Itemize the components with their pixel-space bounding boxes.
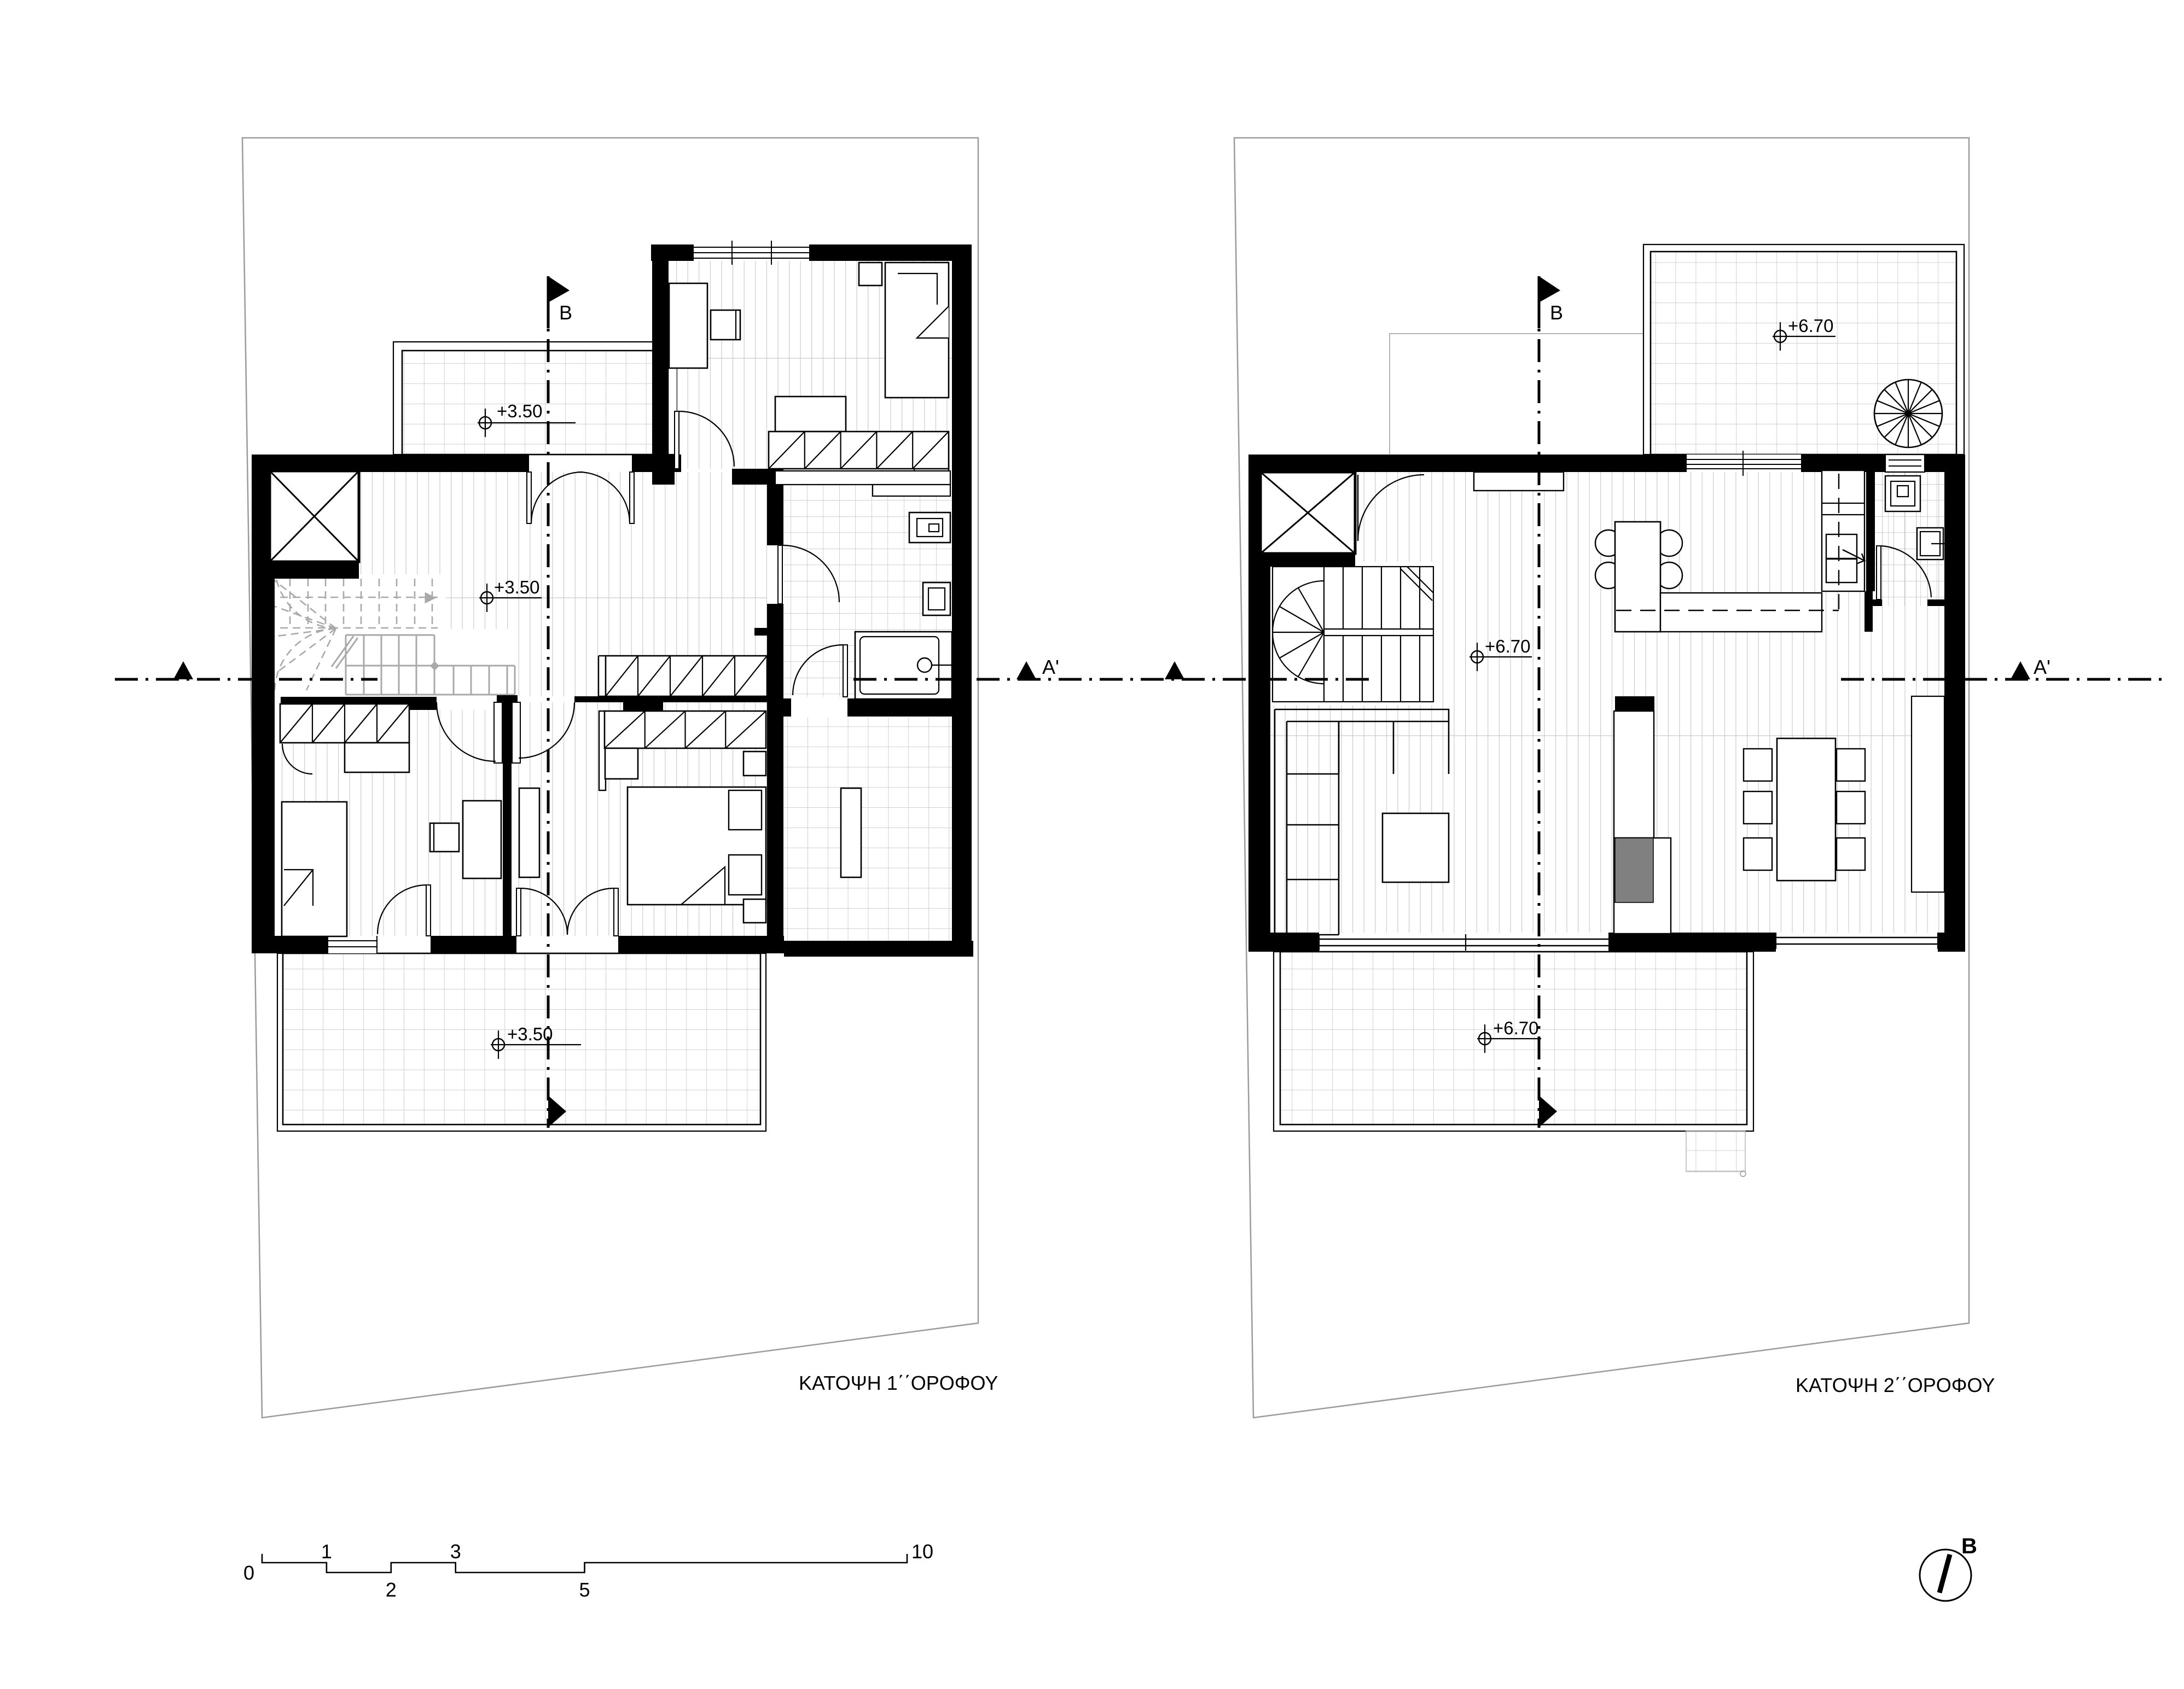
svg-text:A': A' xyxy=(1042,656,1059,678)
svg-text:+3.50: +3.50 xyxy=(507,1024,553,1044)
svg-text:3: 3 xyxy=(450,1540,461,1563)
svg-text:1: 1 xyxy=(321,1540,332,1563)
svg-text:B: B xyxy=(559,301,572,324)
svg-text:+3.50: +3.50 xyxy=(497,401,543,421)
svg-text:+3.50: +3.50 xyxy=(494,577,540,597)
svg-text:ΚΑΤΟΨΗ 1΄΄ΟΡΟΦΟΥ: ΚΑΤΟΨΗ 1΄΄ΟΡΟΦΟΥ xyxy=(799,1372,998,1394)
svg-text:B: B xyxy=(1961,1534,1977,1558)
svg-text:10: 10 xyxy=(911,1540,933,1563)
svg-text:A': A' xyxy=(2034,656,2051,678)
svg-text:5: 5 xyxy=(579,1579,590,1601)
svg-text:+6.70: +6.70 xyxy=(1788,316,1834,336)
svg-text:ΚΑΤΟΨΗ 2΄΄ΟΡΟΦΟΥ: ΚΑΤΟΨΗ 2΄΄ΟΡΟΦΟΥ xyxy=(1796,1374,1995,1396)
svg-text:+6.70: +6.70 xyxy=(1485,636,1531,656)
svg-text:B: B xyxy=(1550,301,1563,324)
svg-text:+6.70: +6.70 xyxy=(1493,1018,1539,1038)
svg-text:2: 2 xyxy=(386,1579,397,1601)
svg-text:0: 0 xyxy=(243,1562,254,1584)
